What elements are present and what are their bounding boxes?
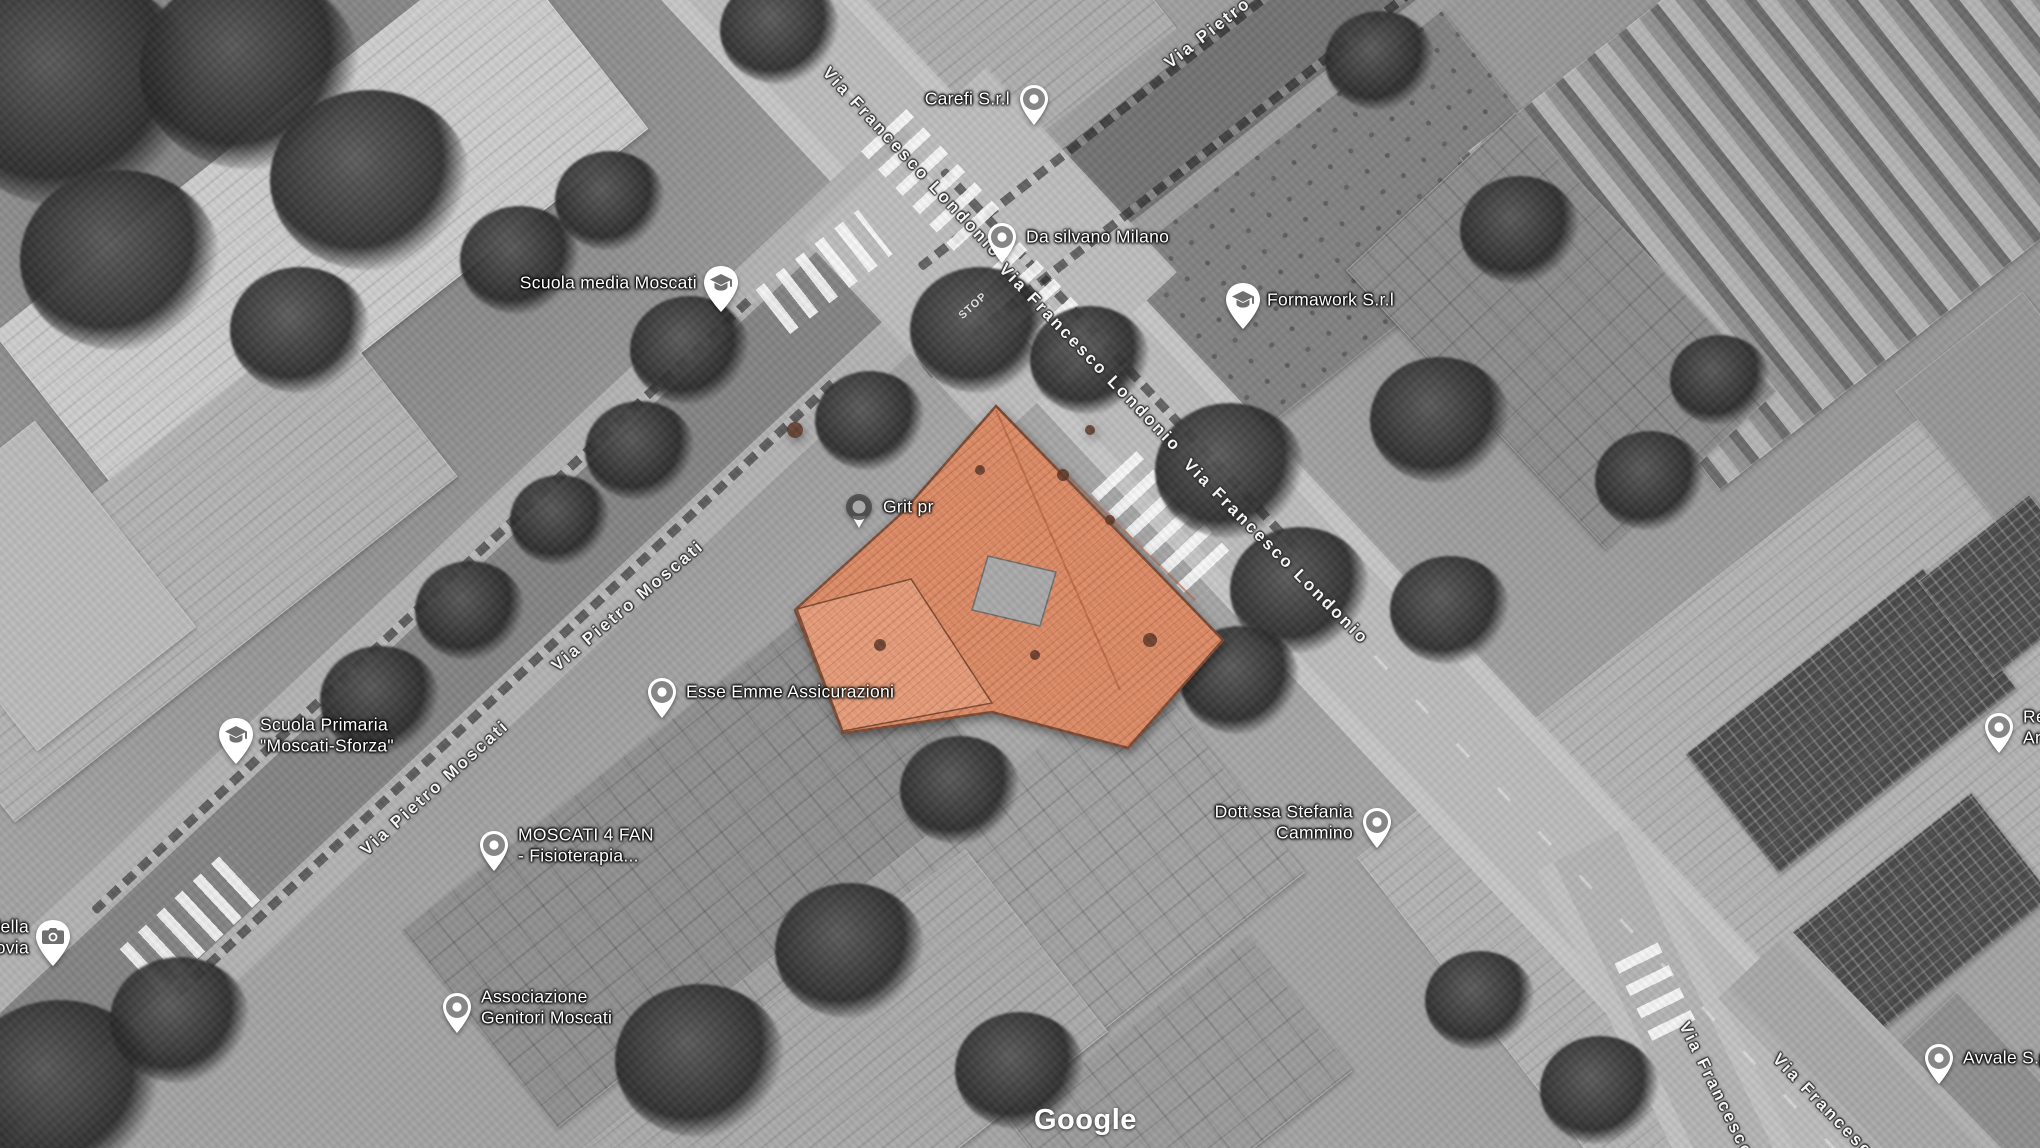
school-pin-icon[interactable] bbox=[216, 716, 256, 766]
poi-label-line: ovia bbox=[0, 937, 29, 958]
poi-label-line: della bbox=[0, 916, 29, 937]
google-logo[interactable]: Google bbox=[1034, 1104, 1137, 1137]
poi-label[interactable]: Dott.ssa StefaniaCammino bbox=[1215, 801, 1353, 842]
highlighted-building[interactable] bbox=[0, 0, 2040, 1148]
poi-label[interactable]: Formawork S.r.l bbox=[1267, 290, 1394, 311]
poi-label[interactable]: Carefi S.r.l bbox=[925, 89, 1010, 110]
poi-label[interactable]: ReAr bbox=[2023, 706, 2040, 747]
poi-label-line: Ar bbox=[2023, 727, 2040, 748]
poi-label-line: Scuola Primaria bbox=[260, 714, 394, 735]
poi-label[interactable]: Grit pr bbox=[883, 497, 934, 518]
poi-label-line: Formawork S.r.l bbox=[1267, 290, 1394, 311]
poi-label-line: Genitori Moscati bbox=[481, 1007, 612, 1028]
poi-label-line: Dott.ssa Stefania bbox=[1215, 801, 1353, 822]
poi-label-line: Esse Emme Assicurazioni bbox=[686, 682, 894, 703]
poi-label[interactable]: Scuola media Moscati bbox=[520, 273, 697, 294]
poi-label-line: Cammino bbox=[1215, 822, 1353, 843]
poi-label-line: Avvale S.p bbox=[1963, 1048, 2040, 1069]
poi-pin-icon[interactable] bbox=[1982, 711, 2016, 755]
school-pin-icon[interactable] bbox=[701, 264, 741, 314]
poi-pin-icon[interactable] bbox=[645, 676, 679, 720]
poi-label[interactable]: Esse Emme Assicurazioni bbox=[686, 682, 894, 703]
poi-label[interactable]: dellaovia bbox=[0, 916, 29, 957]
poi-pin-icon[interactable] bbox=[1922, 1042, 1956, 1086]
poi-label[interactable]: Da silvano Milano bbox=[1026, 227, 1169, 248]
poi-label-line: Da silvano Milano bbox=[1026, 227, 1169, 248]
poi-label-line: "Moscati-Sforza" bbox=[260, 735, 394, 756]
poi-label-line: MOSCATI 4 FAN bbox=[518, 824, 654, 845]
poi-pin-icon[interactable] bbox=[1017, 83, 1051, 127]
poi-pin-icon[interactable] bbox=[440, 991, 474, 1035]
poi-pin-icon[interactable] bbox=[477, 829, 511, 873]
satellite-map[interactable]: Via Francesco LondonioVia Francesco Lond… bbox=[0, 0, 2040, 1148]
poi-label-line: Carefi S.r.l bbox=[925, 89, 1010, 110]
poi-label[interactable]: Scuola Primaria"Moscati-Sforza" bbox=[260, 714, 394, 755]
school-pin-icon[interactable] bbox=[1223, 281, 1263, 331]
camera-pin-icon[interactable] bbox=[33, 918, 73, 968]
poi-label[interactable]: MOSCATI 4 FAN- Fisioterapia... bbox=[518, 824, 654, 865]
poi-label-line: - Fisioterapia... bbox=[518, 845, 654, 866]
poi-label-line: Scuola media Moscati bbox=[520, 273, 697, 294]
poi-pin-icon[interactable] bbox=[985, 221, 1019, 265]
dot-pin-icon[interactable] bbox=[844, 492, 874, 532]
poi-label-line: Associazione bbox=[481, 986, 612, 1007]
poi-label[interactable]: AssociazioneGenitori Moscati bbox=[481, 986, 612, 1027]
poi-label-line: Re bbox=[2023, 706, 2040, 727]
poi-label-line: Grit pr bbox=[883, 497, 934, 518]
poi-label[interactable]: Avvale S.p bbox=[1963, 1048, 2040, 1069]
poi-pin-icon[interactable] bbox=[1360, 806, 1394, 850]
